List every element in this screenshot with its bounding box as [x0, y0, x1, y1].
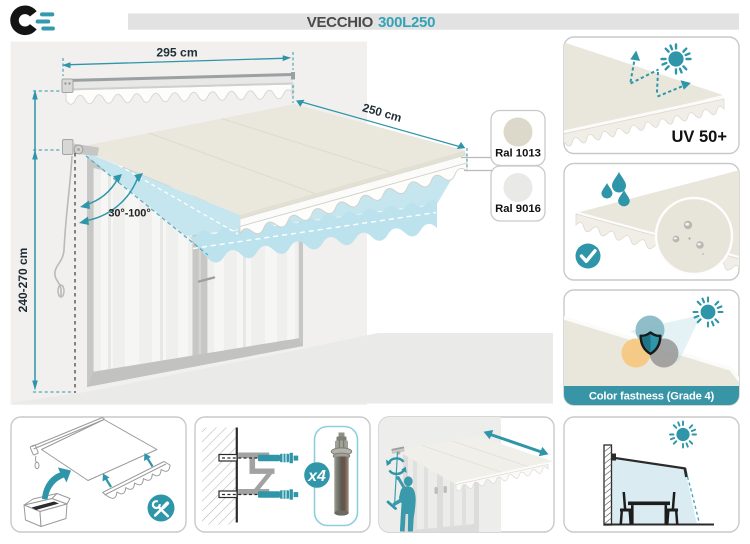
- svg-text:295 cm: 295 cm: [156, 46, 197, 60]
- svg-text:Ral 9016: Ral 9016: [495, 203, 541, 215]
- svg-text:240-270 cm: 240-270 cm: [16, 248, 30, 313]
- svg-text:250 cm: 250 cm: [361, 100, 403, 124]
- svg-text:300L250: 300L250: [378, 14, 435, 31]
- svg-text:x4: x4: [307, 468, 326, 485]
- svg-text:Color fastness (Grade 4): Color fastness (Grade 4): [589, 391, 715, 403]
- svg-text:VECCHIO: VECCHIO: [307, 14, 374, 31]
- svg-text:30°-100°: 30°-100°: [108, 208, 150, 220]
- svg-text:UV 50+: UV 50+: [672, 128, 728, 146]
- svg-text:Ral 1013: Ral 1013: [495, 148, 541, 160]
